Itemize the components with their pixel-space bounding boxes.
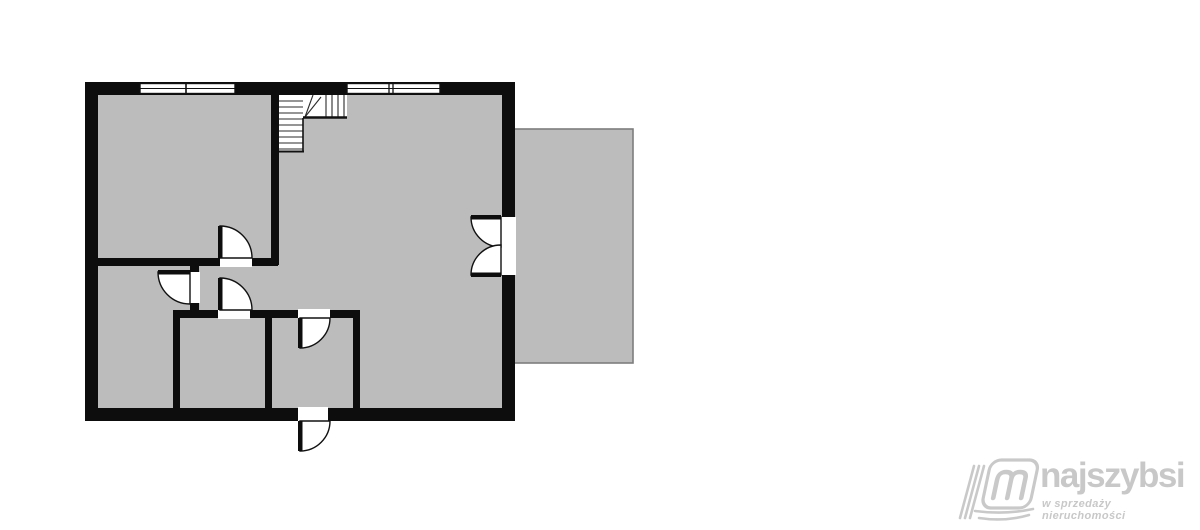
window-icon-right	[347, 84, 440, 94]
balcony	[513, 129, 633, 363]
window-icon-left	[140, 84, 235, 94]
brand-tagline: w sprzedaży nieruchomości	[1042, 498, 1190, 522]
floor-plan-svg	[0, 0, 700, 530]
door-swing-entry	[300, 421, 330, 451]
listing-image: Przemysław Kręcki pk@szczecin-nieruchomo…	[0, 0, 1200, 530]
floor-plan	[0, 0, 700, 530]
brand-logo-icon	[953, 452, 1041, 524]
brand-name: najszybsi	[1040, 458, 1184, 493]
brand-watermark: najszybsi w sprzedaży nieruchomości	[950, 450, 1190, 528]
